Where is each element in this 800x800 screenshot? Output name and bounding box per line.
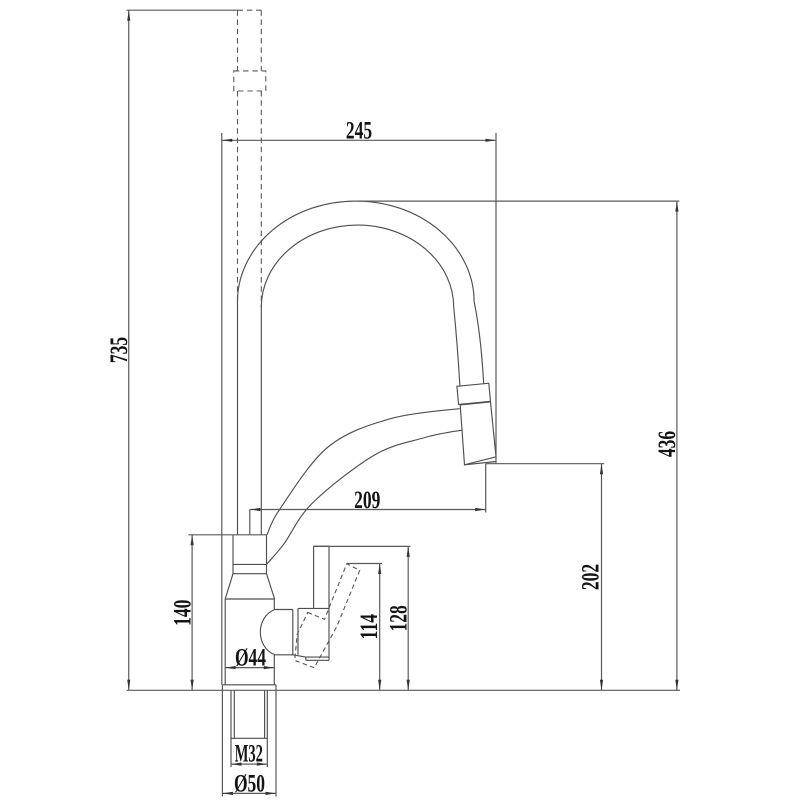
svg-text:Ø50: Ø50 (234, 769, 265, 797)
svg-text:140: 140 (168, 600, 196, 626)
svg-text:209: 209 (354, 486, 380, 514)
svg-text:245: 245 (346, 117, 372, 145)
svg-text:735: 735 (105, 337, 133, 363)
svg-text:128: 128 (384, 605, 412, 631)
svg-text:Ø44: Ø44 (235, 643, 266, 671)
svg-text:436: 436 (653, 431, 681, 457)
svg-text:202: 202 (577, 564, 605, 590)
svg-text:M32: M32 (235, 741, 263, 768)
svg-text:114: 114 (355, 614, 383, 639)
